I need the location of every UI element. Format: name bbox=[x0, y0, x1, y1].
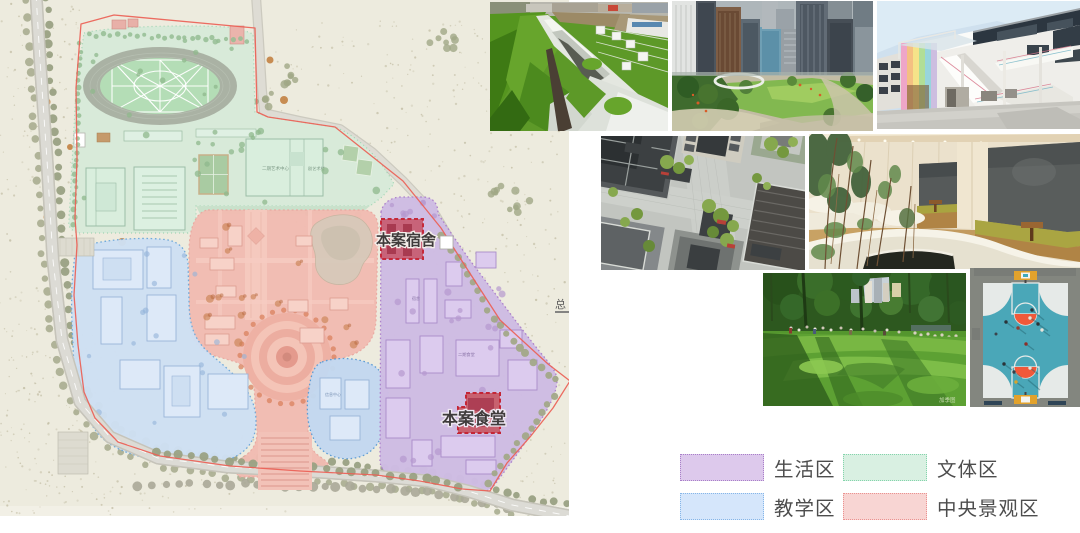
svg-text:加季图: 加季图 bbox=[939, 396, 956, 404]
svg-text:信息中心: 信息中心 bbox=[325, 391, 341, 397]
svg-text:二期食堂: 二期食堂 bbox=[458, 351, 475, 358]
svg-text:二期艺术中心: 二期艺术中心 bbox=[262, 165, 289, 172]
svg-text:本案食堂: 本案食堂 bbox=[442, 409, 506, 428]
svg-text:本案宿舍: 本案宿舍 bbox=[376, 231, 437, 249]
svg-text:宿舍: 宿舍 bbox=[412, 295, 420, 301]
svg-text:总: 总 bbox=[555, 297, 566, 311]
